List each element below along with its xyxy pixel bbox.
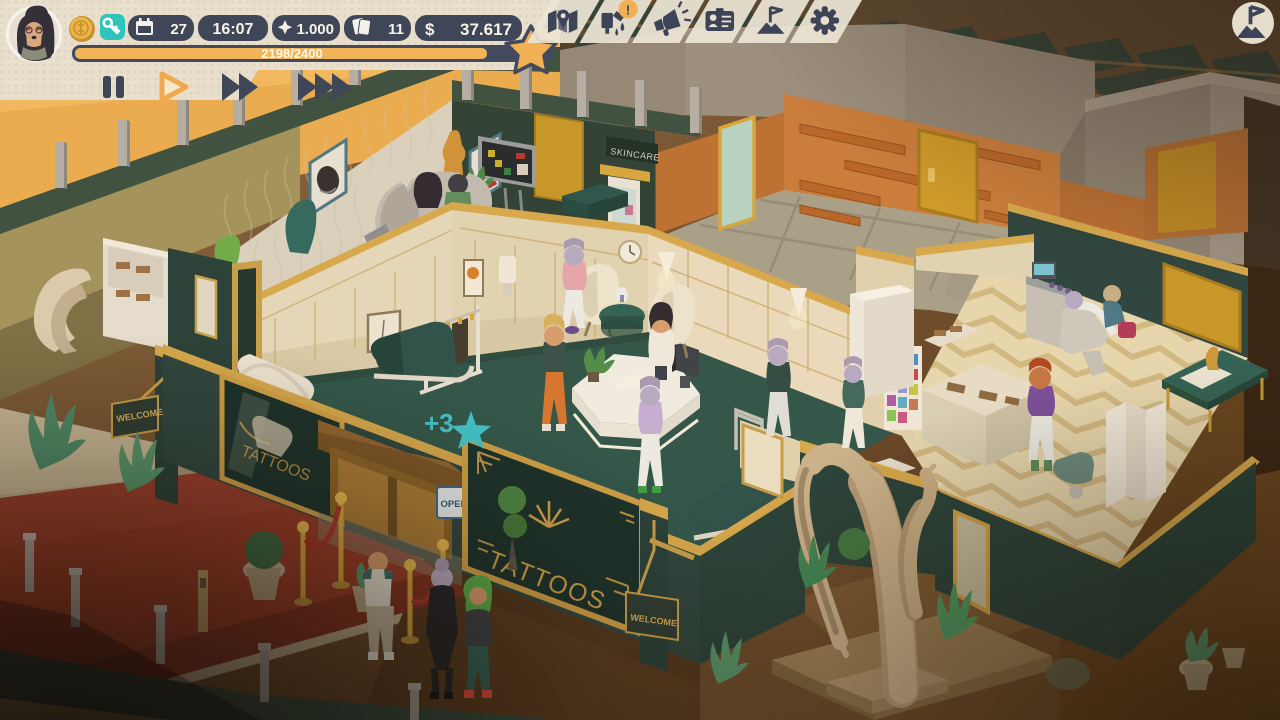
svg-text:2198/2400: 2198/2400 [261,46,322,61]
svg-text:16:07: 16:07 [213,21,254,38]
svg-text:37.617: 37.617 [460,20,512,39]
svg-text:!: ! [626,2,630,17]
svg-text:1.000: 1.000 [296,21,334,38]
svg-text:27: 27 [170,21,187,38]
svg-text:11: 11 [388,21,404,38]
svg-text:$: $ [425,20,435,39]
